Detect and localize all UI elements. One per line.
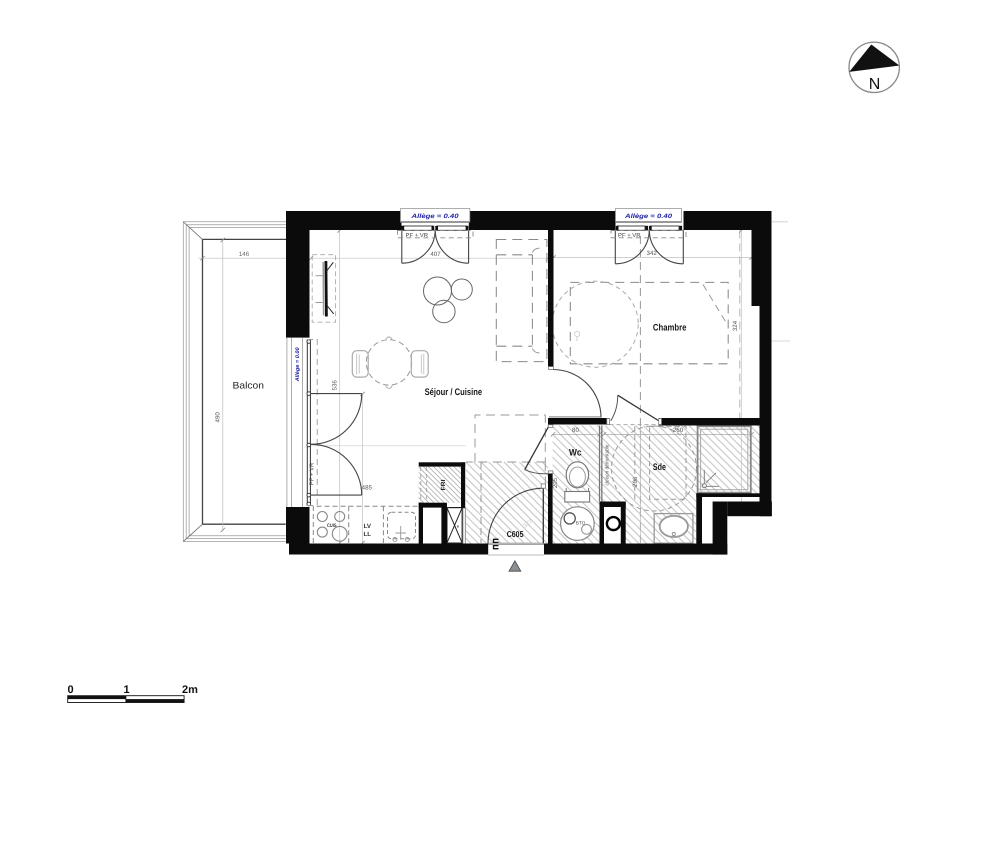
svg-text:Sde: Sde xyxy=(653,462,666,473)
svg-text:PF + VR: PF + VR xyxy=(406,233,429,239)
svg-text:PF + VR: PF + VR xyxy=(618,233,641,239)
svg-text:1: 1 xyxy=(123,684,129,696)
svg-text:205: 205 xyxy=(552,477,559,488)
svg-text:Allège = 0.40: Allège = 0.40 xyxy=(410,213,459,220)
svg-text:LV: LV xyxy=(364,523,372,530)
svg-text:536: 536 xyxy=(331,380,338,391)
svg-text:Balcon: Balcon xyxy=(233,380,265,391)
svg-text:Chambre: Chambre xyxy=(653,323,687,334)
svg-text:146: 146 xyxy=(239,251,250,258)
svg-text:407: 407 xyxy=(430,251,441,258)
svg-text:324: 324 xyxy=(732,320,739,331)
svg-text:CUIS: CUIS xyxy=(327,523,337,529)
svg-text:Séjour / Cuisine: Séjour / Cuisine xyxy=(425,387,483,398)
svg-text:BTD: BTD xyxy=(576,521,586,527)
svg-text:342: 342 xyxy=(647,250,658,257)
svg-text:N: N xyxy=(869,76,881,93)
svg-text:Wc: Wc xyxy=(569,448,582,459)
svg-text:2m: 2m xyxy=(182,684,198,696)
svg-text:80: 80 xyxy=(572,427,579,434)
svg-text:PF + VR: PF + VR xyxy=(310,463,316,486)
svg-text:0: 0 xyxy=(67,684,73,696)
svg-text:Allège = 0.40: Allège = 0.40 xyxy=(624,213,673,220)
svg-text:490: 490 xyxy=(215,412,222,423)
svg-text:C605: C605 xyxy=(507,529,524,539)
svg-text:FRI: FRI xyxy=(440,479,447,490)
svg-text:Allège = 0.00: Allège = 0.00 xyxy=(295,347,301,382)
svg-text:485: 485 xyxy=(362,484,373,491)
svg-text:LL: LL xyxy=(364,531,372,538)
svg-text:cloison démontable: cloison démontable xyxy=(605,444,611,485)
